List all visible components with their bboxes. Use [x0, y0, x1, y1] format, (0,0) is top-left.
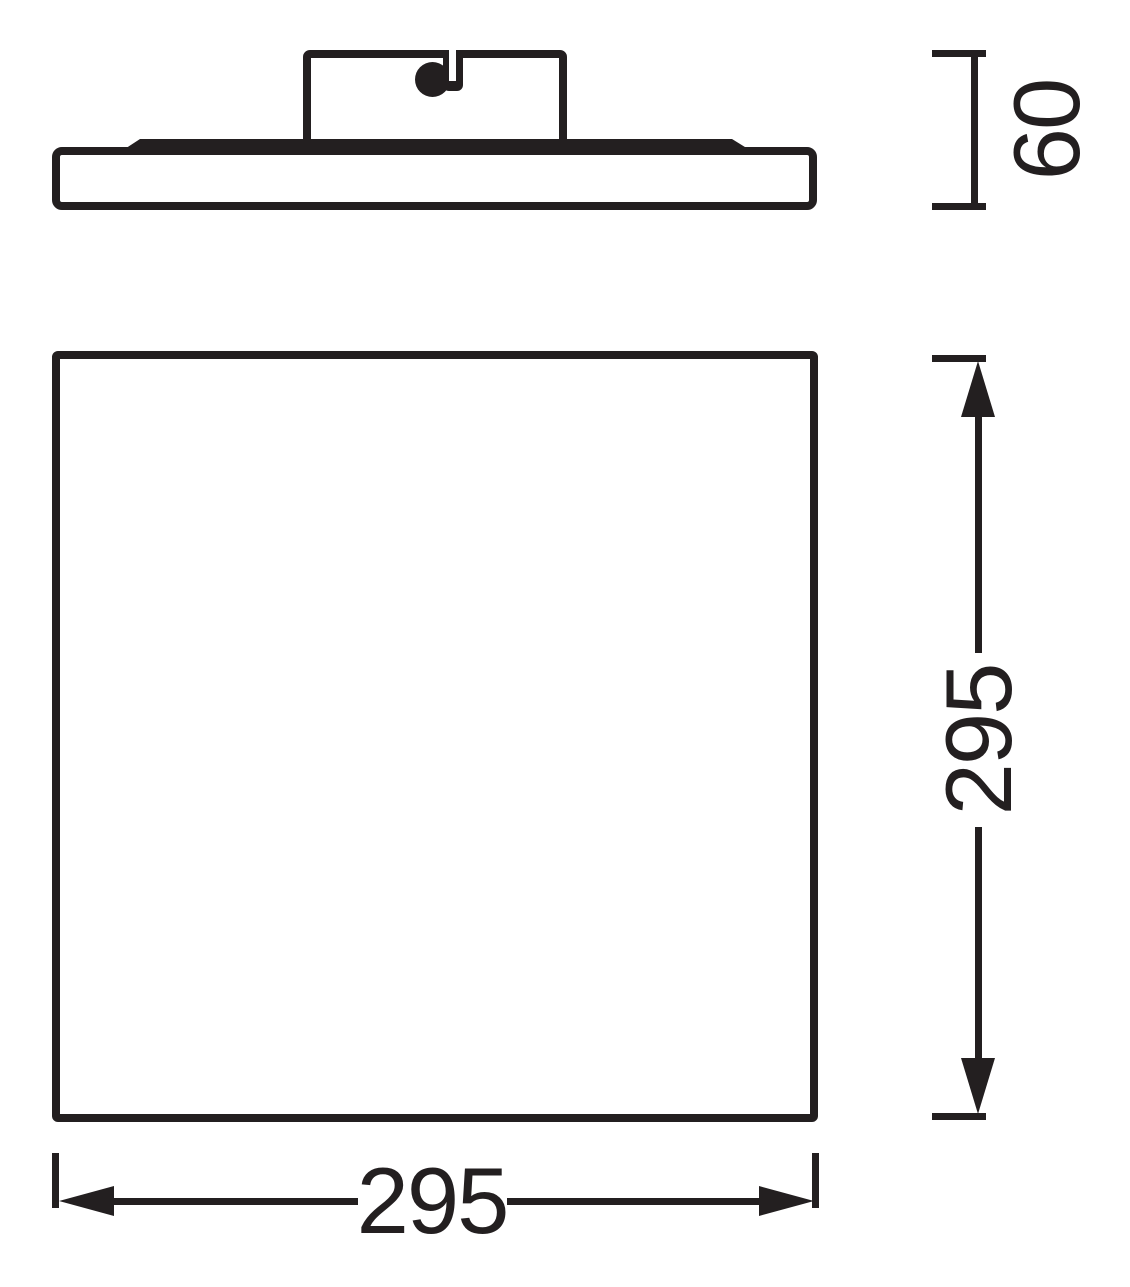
width-dim-tick-right — [812, 1153, 819, 1208]
side-dim-tick-bottom — [932, 1113, 986, 1120]
arrow-left-icon — [59, 1186, 114, 1216]
height-dim-line — [971, 53, 978, 207]
width-dim-tick-left — [52, 1153, 59, 1208]
side-dim-line-lower — [975, 827, 982, 1059]
panel-profile — [52, 147, 817, 210]
side-length-dimension-label: 295 — [932, 665, 1026, 816]
arrow-up-icon — [961, 361, 995, 417]
cable-entry-slit — [449, 50, 456, 81]
width-dimension-label: 295 — [357, 1154, 508, 1248]
cable-entry-circle — [415, 62, 450, 97]
dimension-drawing: 60 295 295 — [0, 0, 1130, 1287]
width-dim-line-left — [112, 1198, 358, 1205]
height-dimension-label: 60 — [1000, 80, 1094, 181]
side-dim-line-upper — [975, 413, 982, 653]
width-dim-line-right — [507, 1198, 766, 1205]
arrow-right-icon — [759, 1186, 814, 1216]
arrow-down-icon — [961, 1058, 995, 1114]
panel-face — [52, 351, 818, 1122]
height-dim-cap-bottom — [932, 203, 986, 210]
